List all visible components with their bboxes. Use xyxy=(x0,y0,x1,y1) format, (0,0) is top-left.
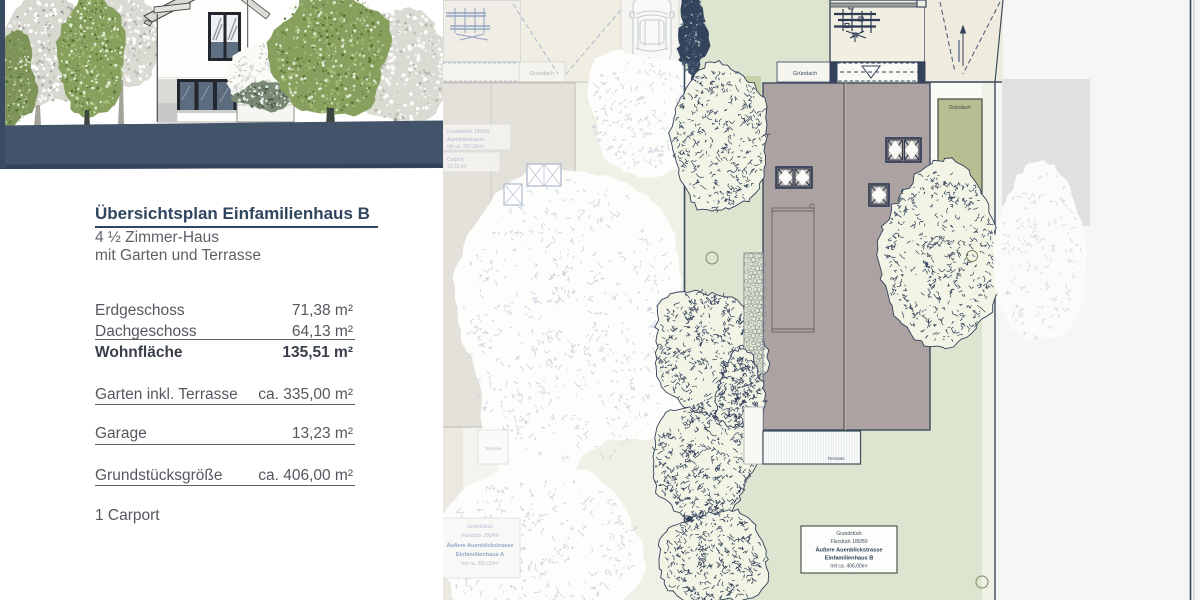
svg-text:Gründach: Gründach xyxy=(530,71,554,77)
svg-text:mit ca. 391,00m²: mit ca. 391,00m² xyxy=(447,144,485,150)
svg-text:Einfamilienhaus A: Einfamilienhaus A xyxy=(456,552,504,558)
svg-text:Gründach: Gründach xyxy=(949,105,971,111)
svg-text:Grundstück: Grundstück xyxy=(836,531,862,537)
svg-text:mit ca. 391,00m²: mit ca. 391,00m² xyxy=(461,561,499,567)
svg-text:Grundstück: Grundstück xyxy=(467,524,493,530)
svg-text:Terrasse: Terrasse xyxy=(485,446,502,451)
svg-text:Flurstück 180/50: Flurstück 180/50 xyxy=(831,539,868,545)
svg-text:Einfamilienhaus B: Einfamilienhaus B xyxy=(825,556,874,562)
svg-text:Flurstück 180/49: Flurstück 180/49 xyxy=(462,533,499,539)
svg-text:Grundstück 180/49: Grundstück 180/49 xyxy=(447,129,489,135)
svg-text:mit ca. 406,00m²: mit ca. 406,00m² xyxy=(830,564,868,570)
svg-text:Äußere Auenblickstrasse: Äußere Auenblickstrasse xyxy=(816,547,883,554)
svg-text:Gründach: Gründach xyxy=(793,71,817,77)
svg-text:Äußere Auenblickstrasse: Äußere Auenblickstrasse xyxy=(447,542,514,549)
svg-text:13,23 m²: 13,23 m² xyxy=(447,164,467,170)
svg-text:Terrasse: Terrasse xyxy=(827,456,845,461)
svg-text:Carport: Carport xyxy=(447,157,464,163)
svg-text:Auenblickstrasse: Auenblickstrasse xyxy=(447,137,485,143)
